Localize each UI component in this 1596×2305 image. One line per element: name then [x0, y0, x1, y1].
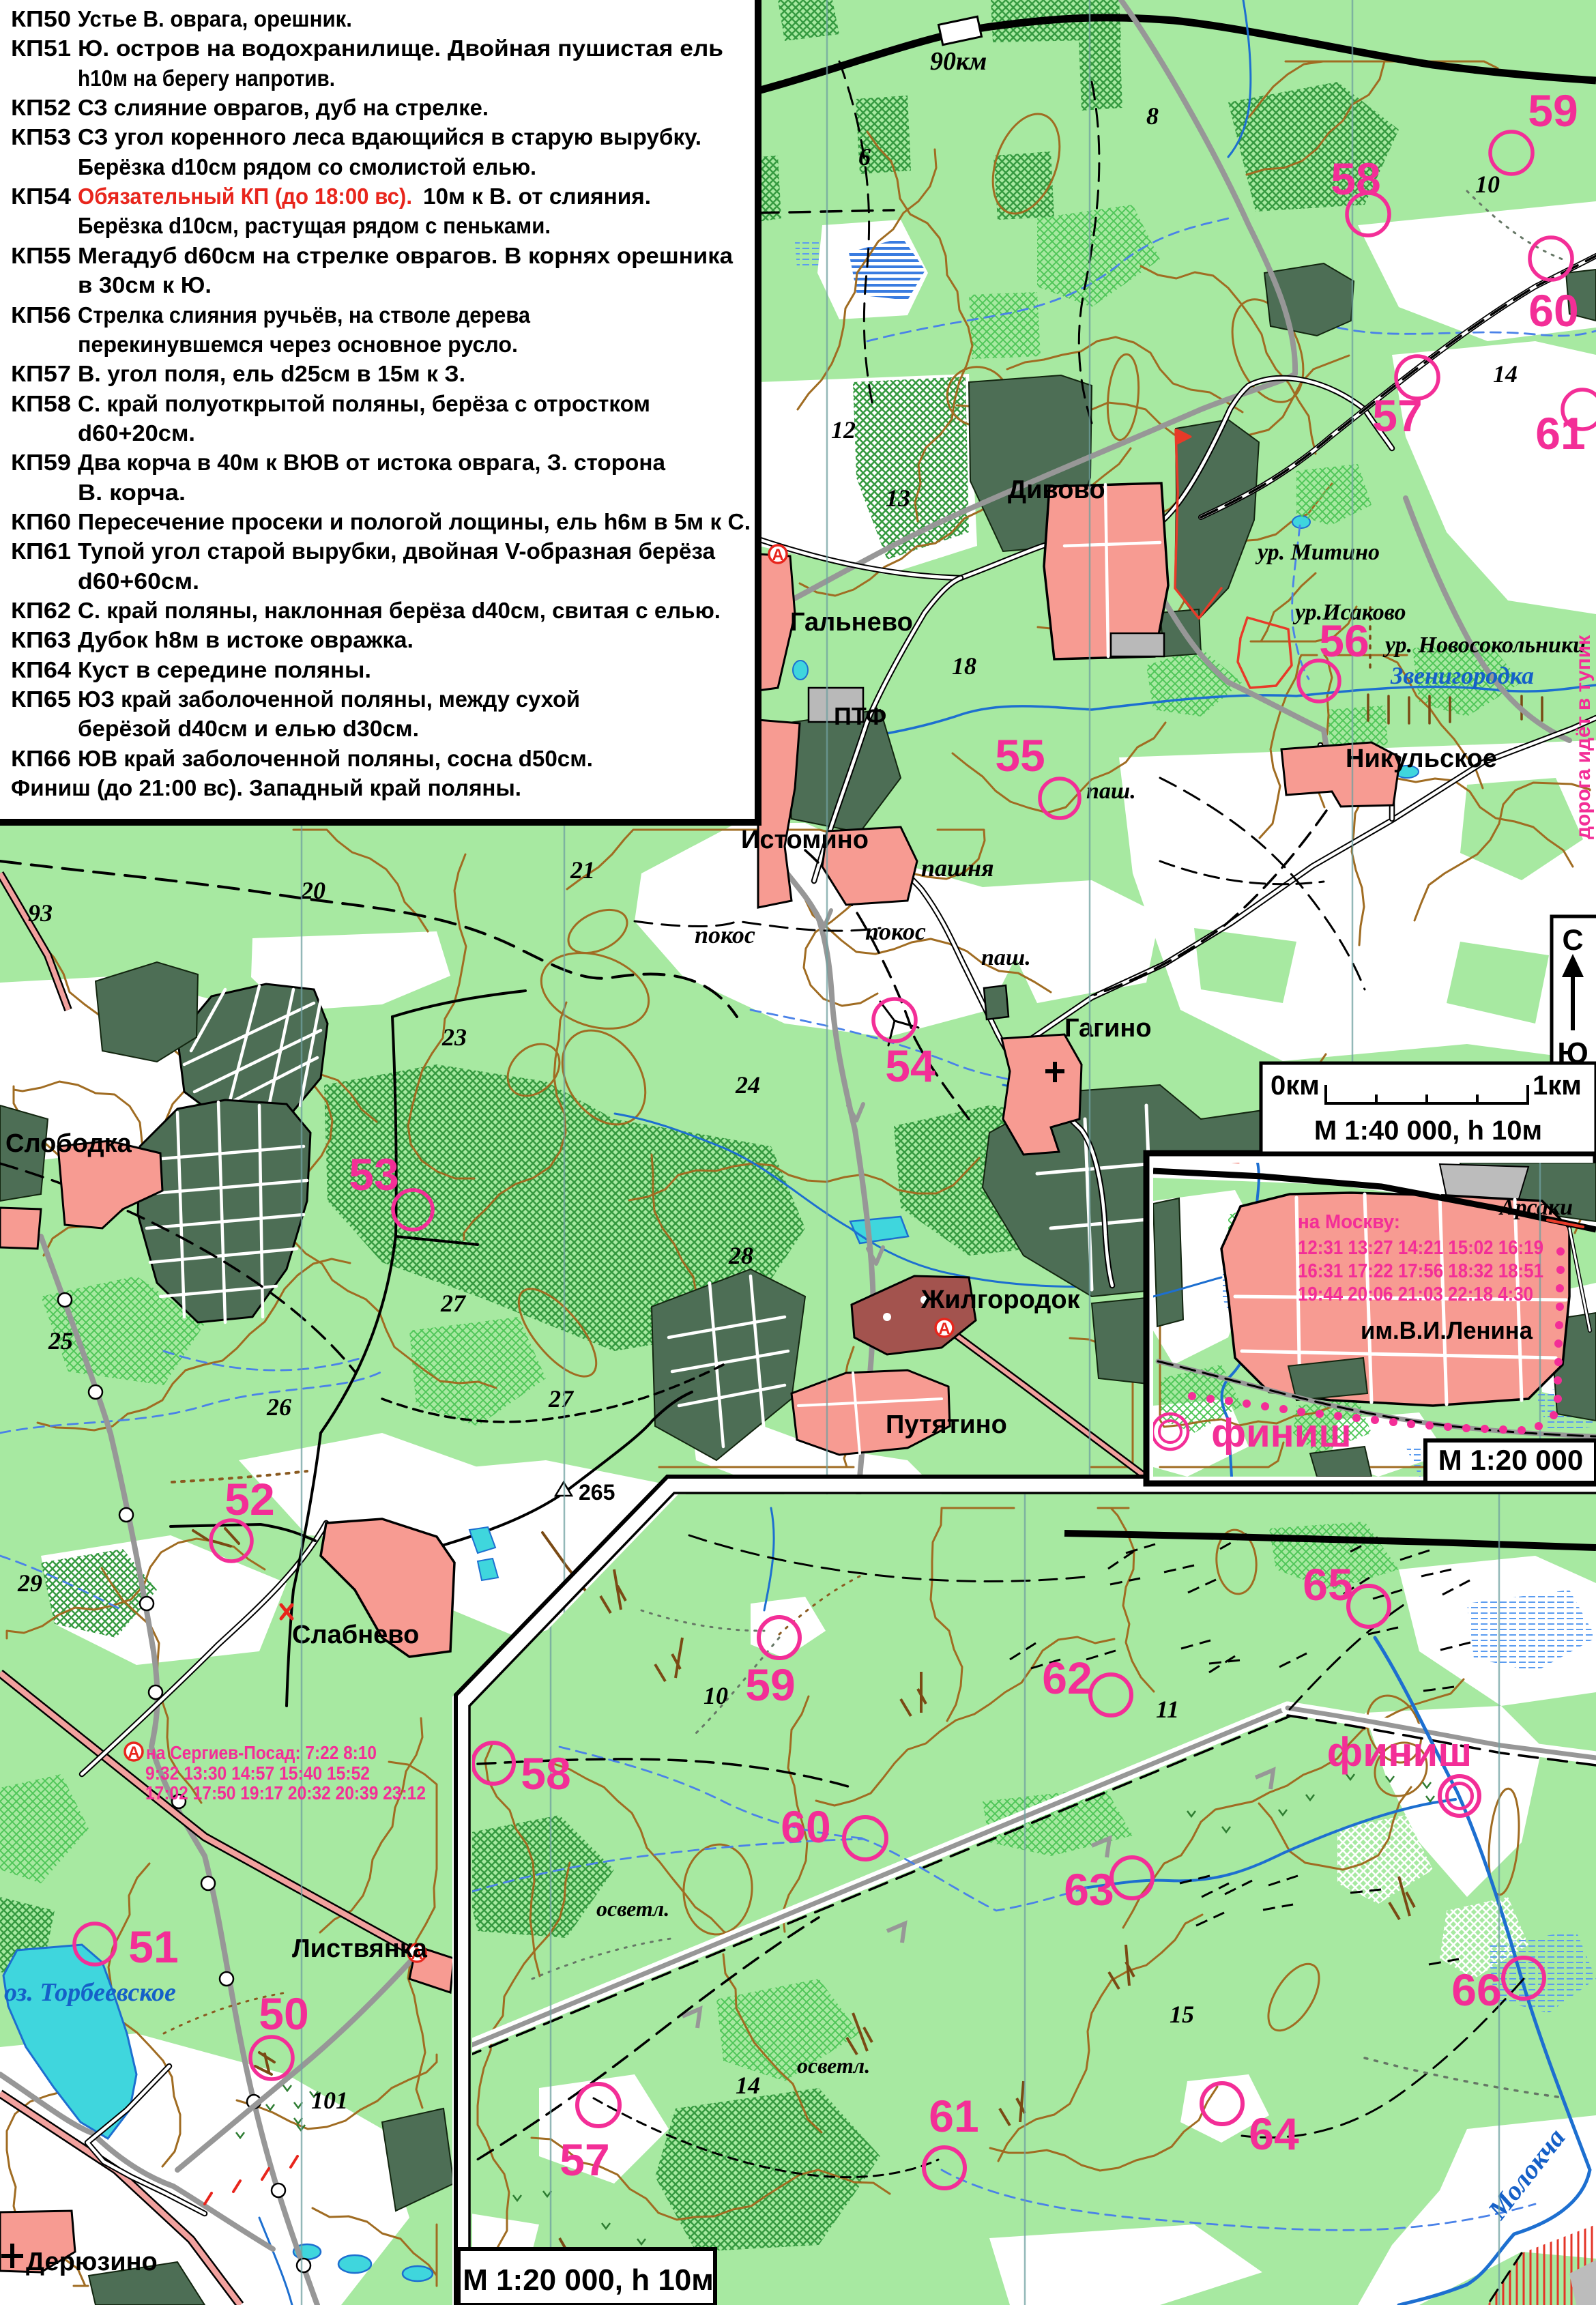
svg-text:КП65: КП65 — [11, 686, 71, 712]
svg-text:М 1:20 000: М 1:20 000 — [1438, 1444, 1583, 1476]
svg-text:КП57: КП57 — [11, 361, 71, 386]
svg-text:57: 57 — [560, 2134, 609, 2185]
svg-text:Гагино: Гагино — [1064, 1014, 1152, 1043]
svg-text:10: 10 — [703, 1682, 728, 1709]
svg-text:им.В.И.Ленина: им.В.И.Ленина — [1361, 1316, 1533, 1344]
svg-text:паш.: паш. — [981, 945, 1031, 970]
svg-text:61: 61 — [1535, 408, 1585, 459]
svg-text:Звенигородка: Звенигородка — [1390, 662, 1534, 689]
svg-text:КП66: КП66 — [11, 746, 71, 771]
svg-text:6: 6 — [858, 143, 871, 171]
svg-text:С. край поляны, наклонная берё: С. край поляны, наклонная берёза d40см, … — [78, 598, 721, 623]
svg-text:11: 11 — [1156, 1696, 1179, 1723]
svg-text:62: 62 — [1042, 1653, 1092, 1703]
svg-text:265: 265 — [579, 1480, 615, 1505]
svg-text:покос: покос — [695, 921, 755, 948]
svg-text:59: 59 — [1528, 85, 1578, 136]
svg-text:57: 57 — [1372, 390, 1422, 441]
svg-text:h10м на берегу напротив.: h10м на берегу напротив. — [78, 66, 335, 91]
svg-text:56: 56 — [1319, 615, 1369, 666]
svg-text:Тупой угол старой вырубки, дво: Тупой угол старой вырубки, двойная V-обр… — [78, 538, 716, 564]
svg-text:1км: 1км — [1533, 1071, 1582, 1101]
svg-text:12: 12 — [831, 416, 856, 444]
svg-text:12:31 13:27 14:21 15:02 16:19: 12:31 13:27 14:21 15:02 16:19 — [1298, 1237, 1543, 1259]
svg-text:10: 10 — [1475, 171, 1500, 198]
svg-text:50: 50 — [259, 1988, 308, 2039]
svg-text:КП64: КП64 — [11, 657, 72, 682]
svg-text:берёзой d40см и елью d30см.: берёзой d40см и елью d30см. — [78, 716, 419, 741]
svg-text:8: 8 — [1146, 102, 1159, 130]
svg-text:26: 26 — [266, 1393, 291, 1421]
svg-text:17:02 17:50 19:17 20:32 20:39: 17:02 17:50 19:17 20:32 20:39 23:12 — [145, 1782, 426, 1803]
svg-text:27: 27 — [548, 1385, 575, 1412]
svg-text:пашня: пашня — [921, 854, 994, 882]
svg-text:Арсаки: Арсаки — [1498, 1195, 1573, 1220]
svg-text:КП63: КП63 — [11, 627, 71, 652]
svg-text:дорога идёт в тупик: дорога идёт в тупик — [1572, 635, 1595, 839]
svg-text:53: 53 — [349, 1149, 398, 1200]
svg-text:9:32 13:30 14:57 15:40 15:52: 9:32 13:30 14:57 15:40 15:52 — [145, 1763, 370, 1784]
svg-text:финиш: финиш — [1327, 1729, 1472, 1775]
svg-text:65: 65 — [1303, 1559, 1352, 1610]
svg-text:КП54: КП54 — [11, 184, 72, 209]
svg-text:А: А — [772, 546, 783, 564]
svg-text:28: 28 — [728, 1242, 753, 1269]
svg-text:в 30см к Ю.: в 30см к Ю. — [78, 272, 212, 298]
svg-text:СЗ угол коренного леса вдающий: СЗ угол коренного леса вдающийся в стару… — [78, 124, 701, 149]
svg-text:ур. Новосокольники: ур. Новосокольники — [1382, 633, 1586, 658]
svg-text:0км: 0км — [1271, 1071, 1320, 1101]
svg-text:59: 59 — [745, 1659, 795, 1710]
svg-text:18: 18 — [952, 652, 976, 680]
svg-text:Стрелка слияния ручьёв, на ств: Стрелка слияния ручьёв, на стволе дерева — [78, 302, 531, 328]
svg-text:М 1:40 000, h 10м: М 1:40 000, h 10м — [1314, 1116, 1542, 1146]
svg-text:КП59: КП59 — [11, 450, 71, 475]
svg-text:58: 58 — [1331, 154, 1380, 204]
svg-text:С. край полуоткрытой поляны, б: С. край полуоткрытой поляны, берёза с от… — [78, 391, 650, 416]
svg-text:14: 14 — [736, 2072, 760, 2099]
svg-text:60: 60 — [781, 1801, 830, 1852]
svg-text:М 1:20 000, h 10м: М 1:20 000, h 10м — [463, 2263, 714, 2297]
svg-text:финиш: финиш — [1211, 1411, 1351, 1455]
svg-text:Берёзка d10см рядом со смолист: Берёзка d10см рядом со смолистой елью. — [78, 154, 536, 179]
svg-text:Путятино: Путятино — [886, 1410, 1007, 1439]
svg-text:90км: 90км — [930, 47, 987, 76]
svg-text:КП58: КП58 — [11, 391, 71, 416]
svg-text:10м к В. от слияния.: 10м к В. от слияния. — [423, 184, 651, 209]
svg-text:Слабнево: Слабнево — [292, 1621, 419, 1649]
svg-text:Истомино: Истомино — [741, 826, 869, 854]
svg-text:61: 61 — [929, 2091, 978, 2141]
svg-text:Устье В. оврага, орешник.: Устье В. оврага, орешник. — [78, 6, 352, 31]
svg-text:Обязательный КП (до 18:00 вс).: Обязательный КП (до 18:00 вс). — [78, 184, 412, 209]
svg-text:КП56: КП56 — [11, 302, 71, 328]
svg-text:КП51: КП51 — [11, 35, 71, 61]
svg-text:Листвянка: Листвянка — [292, 1934, 428, 1963]
svg-text:14: 14 — [1493, 360, 1518, 388]
svg-text:осветл.: осветл. — [797, 2053, 870, 2078]
svg-text:С: С — [1562, 924, 1583, 957]
svg-text:25: 25 — [48, 1327, 73, 1354]
svg-text:20: 20 — [300, 877, 325, 904]
svg-text:64: 64 — [1249, 2108, 1299, 2159]
svg-text:51: 51 — [128, 1922, 178, 1972]
svg-text:66: 66 — [1451, 1965, 1501, 2015]
svg-text:паш.: паш. — [1086, 779, 1136, 804]
svg-text:55: 55 — [995, 730, 1045, 781]
svg-text:Финиш (до 21:00 вс). Западный: Финиш (до 21:00 вс). Западный край полян… — [11, 775, 521, 800]
svg-text:Дерюзино: Дерюзино — [26, 2248, 158, 2276]
svg-text:А: А — [128, 1743, 139, 1762]
svg-text:КП62: КП62 — [11, 598, 71, 623]
svg-text:Гальнево: Гальнево — [790, 608, 913, 637]
svg-text:Дубок h8м в истоке овражка.: Дубок h8м в истоке овражка. — [78, 627, 413, 652]
svg-text:60: 60 — [1528, 285, 1578, 336]
svg-text:Куст в середине поляны.: Куст в середине поляны. — [78, 657, 371, 682]
svg-text:54: 54 — [885, 1041, 935, 1091]
svg-text:КП52: КП52 — [11, 95, 71, 120]
svg-text:13: 13 — [886, 484, 910, 512]
svg-text:Мегадуб d60см на стрелке овраг: Мегадуб d60см на стрелке оврагов. В корн… — [78, 243, 734, 268]
svg-text:ЮВ край заболоченной поляны, с: ЮВ край заболоченной поляны, сосна d50см… — [78, 746, 593, 771]
svg-text:52: 52 — [224, 1474, 274, 1524]
svg-text:КП55: КП55 — [11, 243, 71, 268]
svg-text:24: 24 — [735, 1071, 760, 1099]
svg-text:КП53: КП53 — [11, 124, 71, 149]
svg-text:58: 58 — [521, 1748, 570, 1799]
svg-text:27: 27 — [440, 1290, 467, 1317]
svg-text:на Москву:: на Москву: — [1298, 1211, 1400, 1233]
svg-text:d60+60см.: d60+60см. — [78, 568, 199, 594]
svg-text:63: 63 — [1064, 1864, 1114, 1915]
svg-text:ЮЗ край заболоченной поляны, м: ЮЗ край заболоченной поляны, между сухой — [78, 686, 580, 712]
svg-text:перекинувшемся через основное: перекинувшемся через основное русло. — [78, 332, 518, 357]
svg-text:101: 101 — [311, 2087, 348, 2114]
svg-text:15: 15 — [1170, 2001, 1194, 2028]
svg-text:КП60: КП60 — [11, 509, 71, 534]
svg-text:на Сергиев-Посад: 7:22 8:10: на Сергиев-Посад: 7:22 8:10 — [146, 1742, 377, 1763]
svg-text:СЗ слияние оврагов, дуб на стр: СЗ слияние оврагов, дуб на стрелке. — [78, 95, 489, 120]
svg-text:Ю. остров на водохранилище. Дв: Ю. остров на водохранилище. Двойная пуши… — [78, 35, 723, 61]
svg-text:Берёзка d10см, растущая рядом: Берёзка d10см, растущая рядом с пеньками… — [78, 213, 551, 238]
svg-text:оз. Торбеевское: оз. Торбеевское — [4, 1978, 176, 2007]
svg-text:Два корча в 40м к ВЮВ от исток: Два корча в 40м к ВЮВ от истока оврага, … — [78, 450, 666, 475]
svg-text:ПТФ: ПТФ — [834, 702, 886, 730]
svg-text:покос: покос — [865, 918, 926, 945]
svg-text:Пересечение просеки и пологой: Пересечение просеки и пологой лощины, ел… — [78, 509, 751, 534]
svg-text:КП50: КП50 — [11, 6, 71, 31]
svg-text:А: А — [938, 1320, 950, 1338]
svg-text:29: 29 — [17, 1569, 42, 1597]
svg-text:В. корча.: В. корча. — [78, 480, 186, 505]
svg-text:осветл.: осветл. — [596, 1896, 669, 1921]
svg-text:В. угол поля, ель d25см в 15м: В. угол поля, ель d25см в 15м к З. — [78, 361, 465, 386]
svg-text:Жилгородок: Жилгородок — [920, 1286, 1081, 1314]
svg-text:16:31 17:22 17:56 18:32 18:51: 16:31 17:22 17:56 18:32 18:51 — [1298, 1260, 1543, 1282]
svg-text:КП61: КП61 — [11, 538, 71, 564]
svg-text:d60+20см.: d60+20см. — [78, 420, 195, 446]
svg-text:19:44 20:06 21:03 22:18 4:30: 19:44 20:06 21:03 22:18 4:30 — [1298, 1284, 1533, 1305]
svg-text:Слободка: Слободка — [5, 1129, 132, 1158]
svg-text:ур. Митино: ур. Митино — [1255, 540, 1380, 565]
svg-text:Никульское: Никульское — [1346, 744, 1497, 773]
svg-text:23: 23 — [441, 1024, 467, 1051]
svg-text:21: 21 — [570, 856, 595, 884]
svg-text:93: 93 — [28, 899, 53, 927]
